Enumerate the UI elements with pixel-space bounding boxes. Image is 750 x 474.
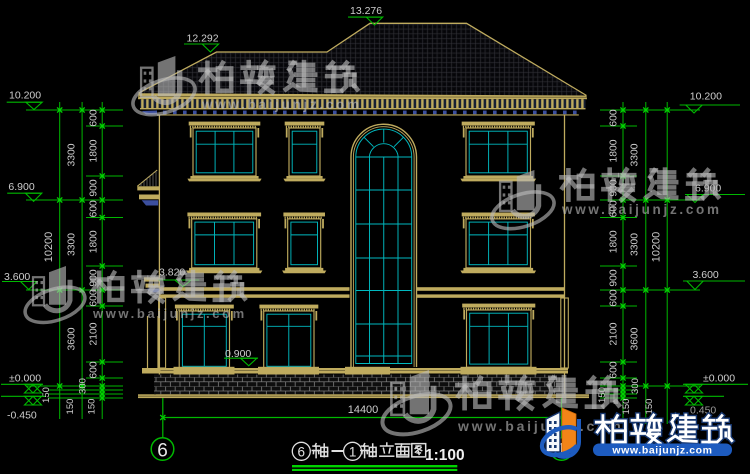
svg-text:10.200: 10.200 [690, 91, 722, 103]
svg-text:-0.450: -0.450 [7, 410, 37, 422]
svg-text:3.600: 3.600 [693, 269, 719, 281]
svg-text:600: 600 [89, 109, 100, 126]
svg-text:600: 600 [89, 200, 100, 217]
svg-text:600: 600 [89, 361, 100, 378]
svg-text:300: 300 [630, 378, 641, 394]
svg-text:150: 150 [65, 399, 76, 415]
svg-text:3600: 3600 [67, 327, 78, 350]
svg-text:10.200: 10.200 [9, 90, 41, 102]
svg-text:www.baijunjz.com: www.baijunjz.com [201, 97, 362, 112]
svg-text:0.450: 0.450 [690, 405, 716, 417]
svg-text:10200: 10200 [43, 232, 55, 263]
svg-text:3300: 3300 [630, 233, 641, 256]
svg-text:14400: 14400 [348, 404, 379, 416]
svg-text:6: 6 [157, 441, 168, 462]
svg-text:3300: 3300 [630, 143, 641, 166]
svg-text:10200: 10200 [651, 232, 663, 263]
svg-text:1: 1 [349, 445, 357, 460]
svg-text:1:100: 1:100 [425, 447, 465, 464]
svg-text:2100: 2100 [89, 322, 100, 345]
svg-text:150: 150 [41, 387, 52, 403]
svg-text:1800: 1800 [89, 230, 100, 253]
svg-text:900: 900 [89, 179, 100, 196]
svg-text:12.292: 12.292 [187, 33, 219, 45]
svg-text:1800: 1800 [609, 230, 620, 253]
svg-text:6: 6 [298, 445, 306, 460]
svg-text:150: 150 [621, 399, 632, 415]
svg-text:3300: 3300 [67, 233, 78, 256]
svg-text:150: 150 [87, 399, 98, 415]
svg-text:1800: 1800 [609, 139, 620, 162]
svg-text:www.baijunjz.com: www.baijunjz.com [561, 202, 722, 217]
svg-text:www.baijunjz.com: www.baijunjz.com [611, 445, 712, 457]
svg-text:±0.000: ±0.000 [703, 373, 735, 385]
svg-text:900: 900 [609, 269, 620, 286]
svg-text:13.276: 13.276 [350, 5, 382, 17]
svg-text:600: 600 [609, 109, 620, 126]
svg-text:±0.000: ±0.000 [9, 373, 41, 385]
svg-text:600: 600 [609, 361, 620, 378]
svg-text:1800: 1800 [89, 139, 100, 162]
svg-text:3300: 3300 [67, 143, 78, 166]
svg-text:www.baijunjz.com: www.baijunjz.com [92, 306, 247, 321]
svg-text:6.900: 6.900 [8, 181, 34, 193]
svg-text:300: 300 [78, 378, 89, 394]
svg-text:600: 600 [609, 289, 620, 306]
svg-text:2100: 2100 [609, 322, 620, 345]
svg-text:3600: 3600 [630, 327, 641, 350]
